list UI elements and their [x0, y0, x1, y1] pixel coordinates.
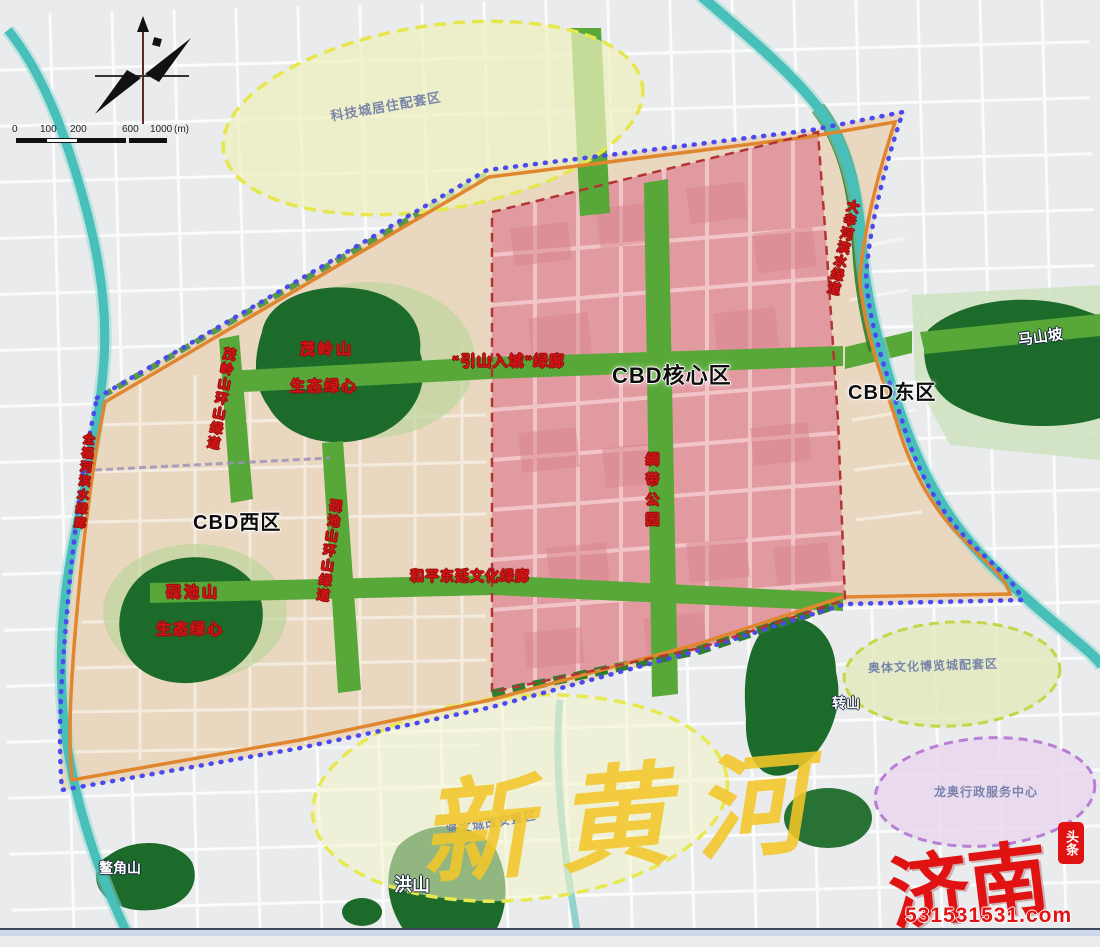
toutiao-badge: 头条 [1058, 822, 1084, 864]
yanchi-name-label: 砚池山 [166, 585, 220, 602]
planning-map: 0 100 200 600 1000 (m) CBD核心区 CBD西区 CBD东… [0, 0, 1100, 936]
maoling-name-label: 茂岭山 [300, 342, 354, 359]
scale-tick: 600 [122, 124, 139, 135]
yanchi-ecoheart-label: 生态绿心 [156, 622, 224, 639]
longao-center-label: 龙奥行政服务中心 [934, 786, 1038, 799]
scale-tick: 100 [40, 124, 57, 135]
yinshan-corridor-label: “引山入城”绿廊 [452, 354, 565, 371]
scale-unit: (m) [174, 124, 189, 135]
cbd-east-label: CBD东区 [848, 382, 936, 404]
ribbon-park-label: 绸带公园 [644, 452, 659, 532]
site-url: 531531531.com [905, 904, 1072, 928]
zhuanshan-label: 转山 [832, 696, 860, 711]
heping-corridor-label: 和平东延文化绿廊 [410, 569, 530, 584]
scale-tick: 0 [12, 124, 18, 135]
scale-bar: 0 100 200 600 1000 (m) [12, 124, 172, 148]
cbd-core-label: CBD核心区 [612, 364, 732, 388]
image-bottom-edge [0, 928, 1100, 936]
maoling-ecoheart-label: 生态绿心 [290, 379, 358, 396]
cbd-west-label: CBD西区 [193, 512, 281, 534]
north-compass-icon [92, 14, 192, 132]
scale-tick: 1000 [150, 124, 172, 135]
aojiao-label: 鳌角山 [99, 861, 141, 876]
scale-tick: 200 [70, 124, 87, 135]
